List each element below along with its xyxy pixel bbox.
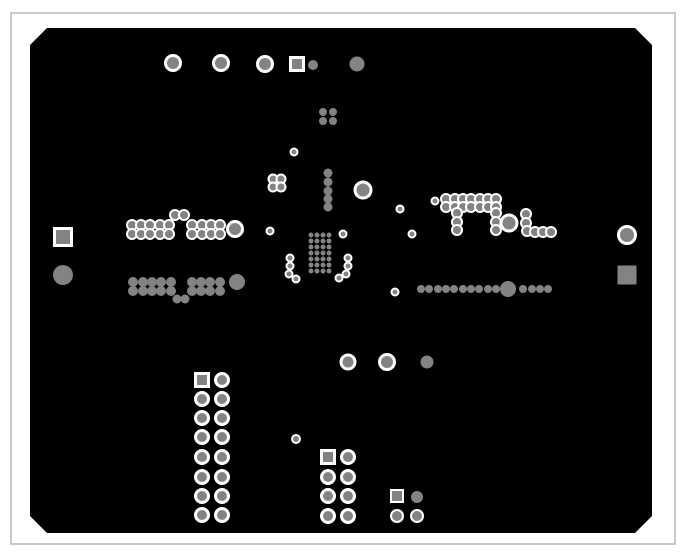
via-pad-ringed xyxy=(216,431,229,444)
via-pad xyxy=(321,233,326,238)
via-pad xyxy=(321,245,326,250)
via-pad-ringed xyxy=(411,510,423,522)
via-pad-ringed xyxy=(342,471,355,484)
via-pad-ringed xyxy=(187,229,197,239)
via-pad xyxy=(442,285,450,293)
via-pad-ringed xyxy=(196,509,209,522)
square-pad-ringed xyxy=(55,229,72,246)
via-pad-ringed xyxy=(216,471,229,484)
via-pad xyxy=(315,233,320,238)
via-pad-ringed xyxy=(345,263,352,270)
pcb-layer-viewer xyxy=(0,0,685,558)
via-pad xyxy=(181,295,190,304)
via-pad xyxy=(417,285,425,293)
via-pad xyxy=(319,108,327,116)
via-pad-ringed xyxy=(196,490,209,503)
via-pad xyxy=(309,233,314,238)
via-pad-ringed xyxy=(345,255,352,262)
via-pad xyxy=(215,277,225,287)
via-pad xyxy=(156,286,166,296)
via-pad-ringed xyxy=(292,435,300,443)
via-pad xyxy=(321,269,326,274)
via-pad-ringed xyxy=(216,451,229,464)
via-pad xyxy=(324,169,333,178)
via-pad xyxy=(309,251,314,256)
via-pad xyxy=(500,281,516,297)
via-pad-ringed xyxy=(216,374,229,387)
via-pad xyxy=(434,285,442,293)
via-pad xyxy=(315,239,320,244)
via-pad xyxy=(324,203,333,212)
via-pad xyxy=(329,108,337,116)
via-pad xyxy=(327,251,332,256)
via-pad-ringed xyxy=(277,183,286,192)
via-pad-ringed xyxy=(216,412,229,425)
via-pad xyxy=(411,491,423,503)
via-pad xyxy=(321,239,326,244)
via-pad-ringed xyxy=(322,510,335,523)
via-pad-ringed xyxy=(491,225,501,235)
via-pad-ringed xyxy=(501,215,517,231)
via-pad xyxy=(128,277,138,287)
square-pad xyxy=(618,266,637,285)
via-pad xyxy=(492,285,500,293)
via-pad-ringed xyxy=(216,393,229,406)
via-pad xyxy=(327,263,332,268)
via-pad-ringed xyxy=(355,182,371,198)
via-pad-ringed xyxy=(397,206,404,213)
via-pad-ringed xyxy=(409,231,416,238)
via-pad-ringed xyxy=(432,198,439,205)
via-pad-ringed xyxy=(342,510,355,523)
via-pad-ringed xyxy=(214,56,229,71)
via-pad-ringed xyxy=(215,229,225,239)
via-pad-ringed xyxy=(293,276,300,283)
via-pad xyxy=(196,277,206,287)
via-pad xyxy=(321,251,326,256)
via-pad-ringed xyxy=(164,229,174,239)
via-pad xyxy=(215,286,225,296)
via-pad-ringed xyxy=(322,490,335,503)
via-pad xyxy=(528,285,536,293)
via-pad xyxy=(315,269,320,274)
via-pad xyxy=(309,257,314,262)
via-pad xyxy=(324,195,333,204)
via-pad-ringed xyxy=(196,393,209,406)
via-pad-ringed xyxy=(216,509,229,522)
via-pad xyxy=(147,286,157,296)
via-pad-ringed xyxy=(267,228,274,235)
via-pad xyxy=(425,285,433,293)
via-pad-ringed xyxy=(380,355,395,370)
via-pad-ringed xyxy=(258,57,273,72)
via-pad xyxy=(196,286,206,296)
via-pad xyxy=(319,117,327,125)
via-pad-ringed xyxy=(619,227,636,244)
via-pad-ringed xyxy=(196,451,209,464)
via-pad-ringed xyxy=(341,355,355,369)
via-pad xyxy=(350,57,365,72)
via-pad xyxy=(156,277,166,287)
square-pad-ringed xyxy=(322,451,335,464)
via-pad xyxy=(205,286,215,296)
via-pad-ringed xyxy=(291,149,298,156)
via-pad xyxy=(327,233,332,238)
via-pad-ringed xyxy=(342,490,355,503)
via-pad-ringed xyxy=(343,271,350,278)
via-pad xyxy=(138,286,148,296)
via-pad-ringed xyxy=(322,471,335,484)
via-pad xyxy=(421,356,434,369)
via-pad xyxy=(327,257,332,262)
via-pad xyxy=(544,285,552,293)
via-pad xyxy=(308,60,318,70)
via-pad xyxy=(205,277,215,287)
via-pad xyxy=(327,239,332,244)
via-pad xyxy=(327,269,332,274)
square-pad-ringed xyxy=(391,490,403,502)
via-pad xyxy=(315,251,320,256)
via-pad xyxy=(173,295,182,304)
via-pad xyxy=(229,274,245,290)
via-pad-ringed xyxy=(196,412,209,425)
via-pad xyxy=(324,178,333,187)
via-pad xyxy=(187,277,197,287)
via-pad xyxy=(324,187,333,196)
via-pad-ringed xyxy=(342,451,355,464)
square-pad-ringed xyxy=(196,374,209,387)
via-pad xyxy=(536,285,544,293)
via-pad-ringed xyxy=(392,289,399,296)
via-pad xyxy=(321,263,326,268)
via-pad-ringed xyxy=(196,471,209,484)
via-pad-ringed xyxy=(391,510,403,522)
via-pad xyxy=(147,277,157,287)
via-pad xyxy=(315,257,320,262)
via-pad xyxy=(309,239,314,244)
via-pad-ringed xyxy=(452,225,462,235)
via-pad xyxy=(459,285,467,293)
via-pad-ringed xyxy=(145,229,155,239)
via-pad xyxy=(166,277,176,287)
via-pad xyxy=(138,277,148,287)
via-pad xyxy=(166,286,176,296)
via-pad xyxy=(329,117,337,125)
via-pad xyxy=(327,245,332,250)
via-pad-ringed xyxy=(216,490,229,503)
via-pad xyxy=(467,285,475,293)
via-pad-ringed xyxy=(340,231,347,238)
via-pad-ringed xyxy=(287,263,294,270)
via-pad xyxy=(128,286,138,296)
via-pad xyxy=(187,286,197,296)
via-pad-ringed xyxy=(196,431,209,444)
via-pad xyxy=(519,285,527,293)
via-pad-ringed xyxy=(546,227,556,237)
via-pad xyxy=(484,285,492,293)
via-pad xyxy=(321,257,326,262)
pcb-board-layer-image xyxy=(0,0,685,558)
via-pad-ringed xyxy=(166,56,181,71)
via-pad xyxy=(309,269,314,274)
via-pad-ringed xyxy=(228,222,243,237)
via-pad xyxy=(53,265,73,285)
via-pad-ringed xyxy=(286,271,293,278)
via-pad xyxy=(315,245,320,250)
via-pad xyxy=(450,285,458,293)
via-pad xyxy=(315,263,320,268)
via-pad-ringed xyxy=(287,255,294,262)
via-pad-ringed xyxy=(336,275,343,282)
via-pad-ringed xyxy=(179,210,189,220)
square-pad-ringed xyxy=(291,58,304,71)
via-pad xyxy=(309,245,314,250)
via-pad xyxy=(475,285,483,293)
via-pad xyxy=(309,263,314,268)
